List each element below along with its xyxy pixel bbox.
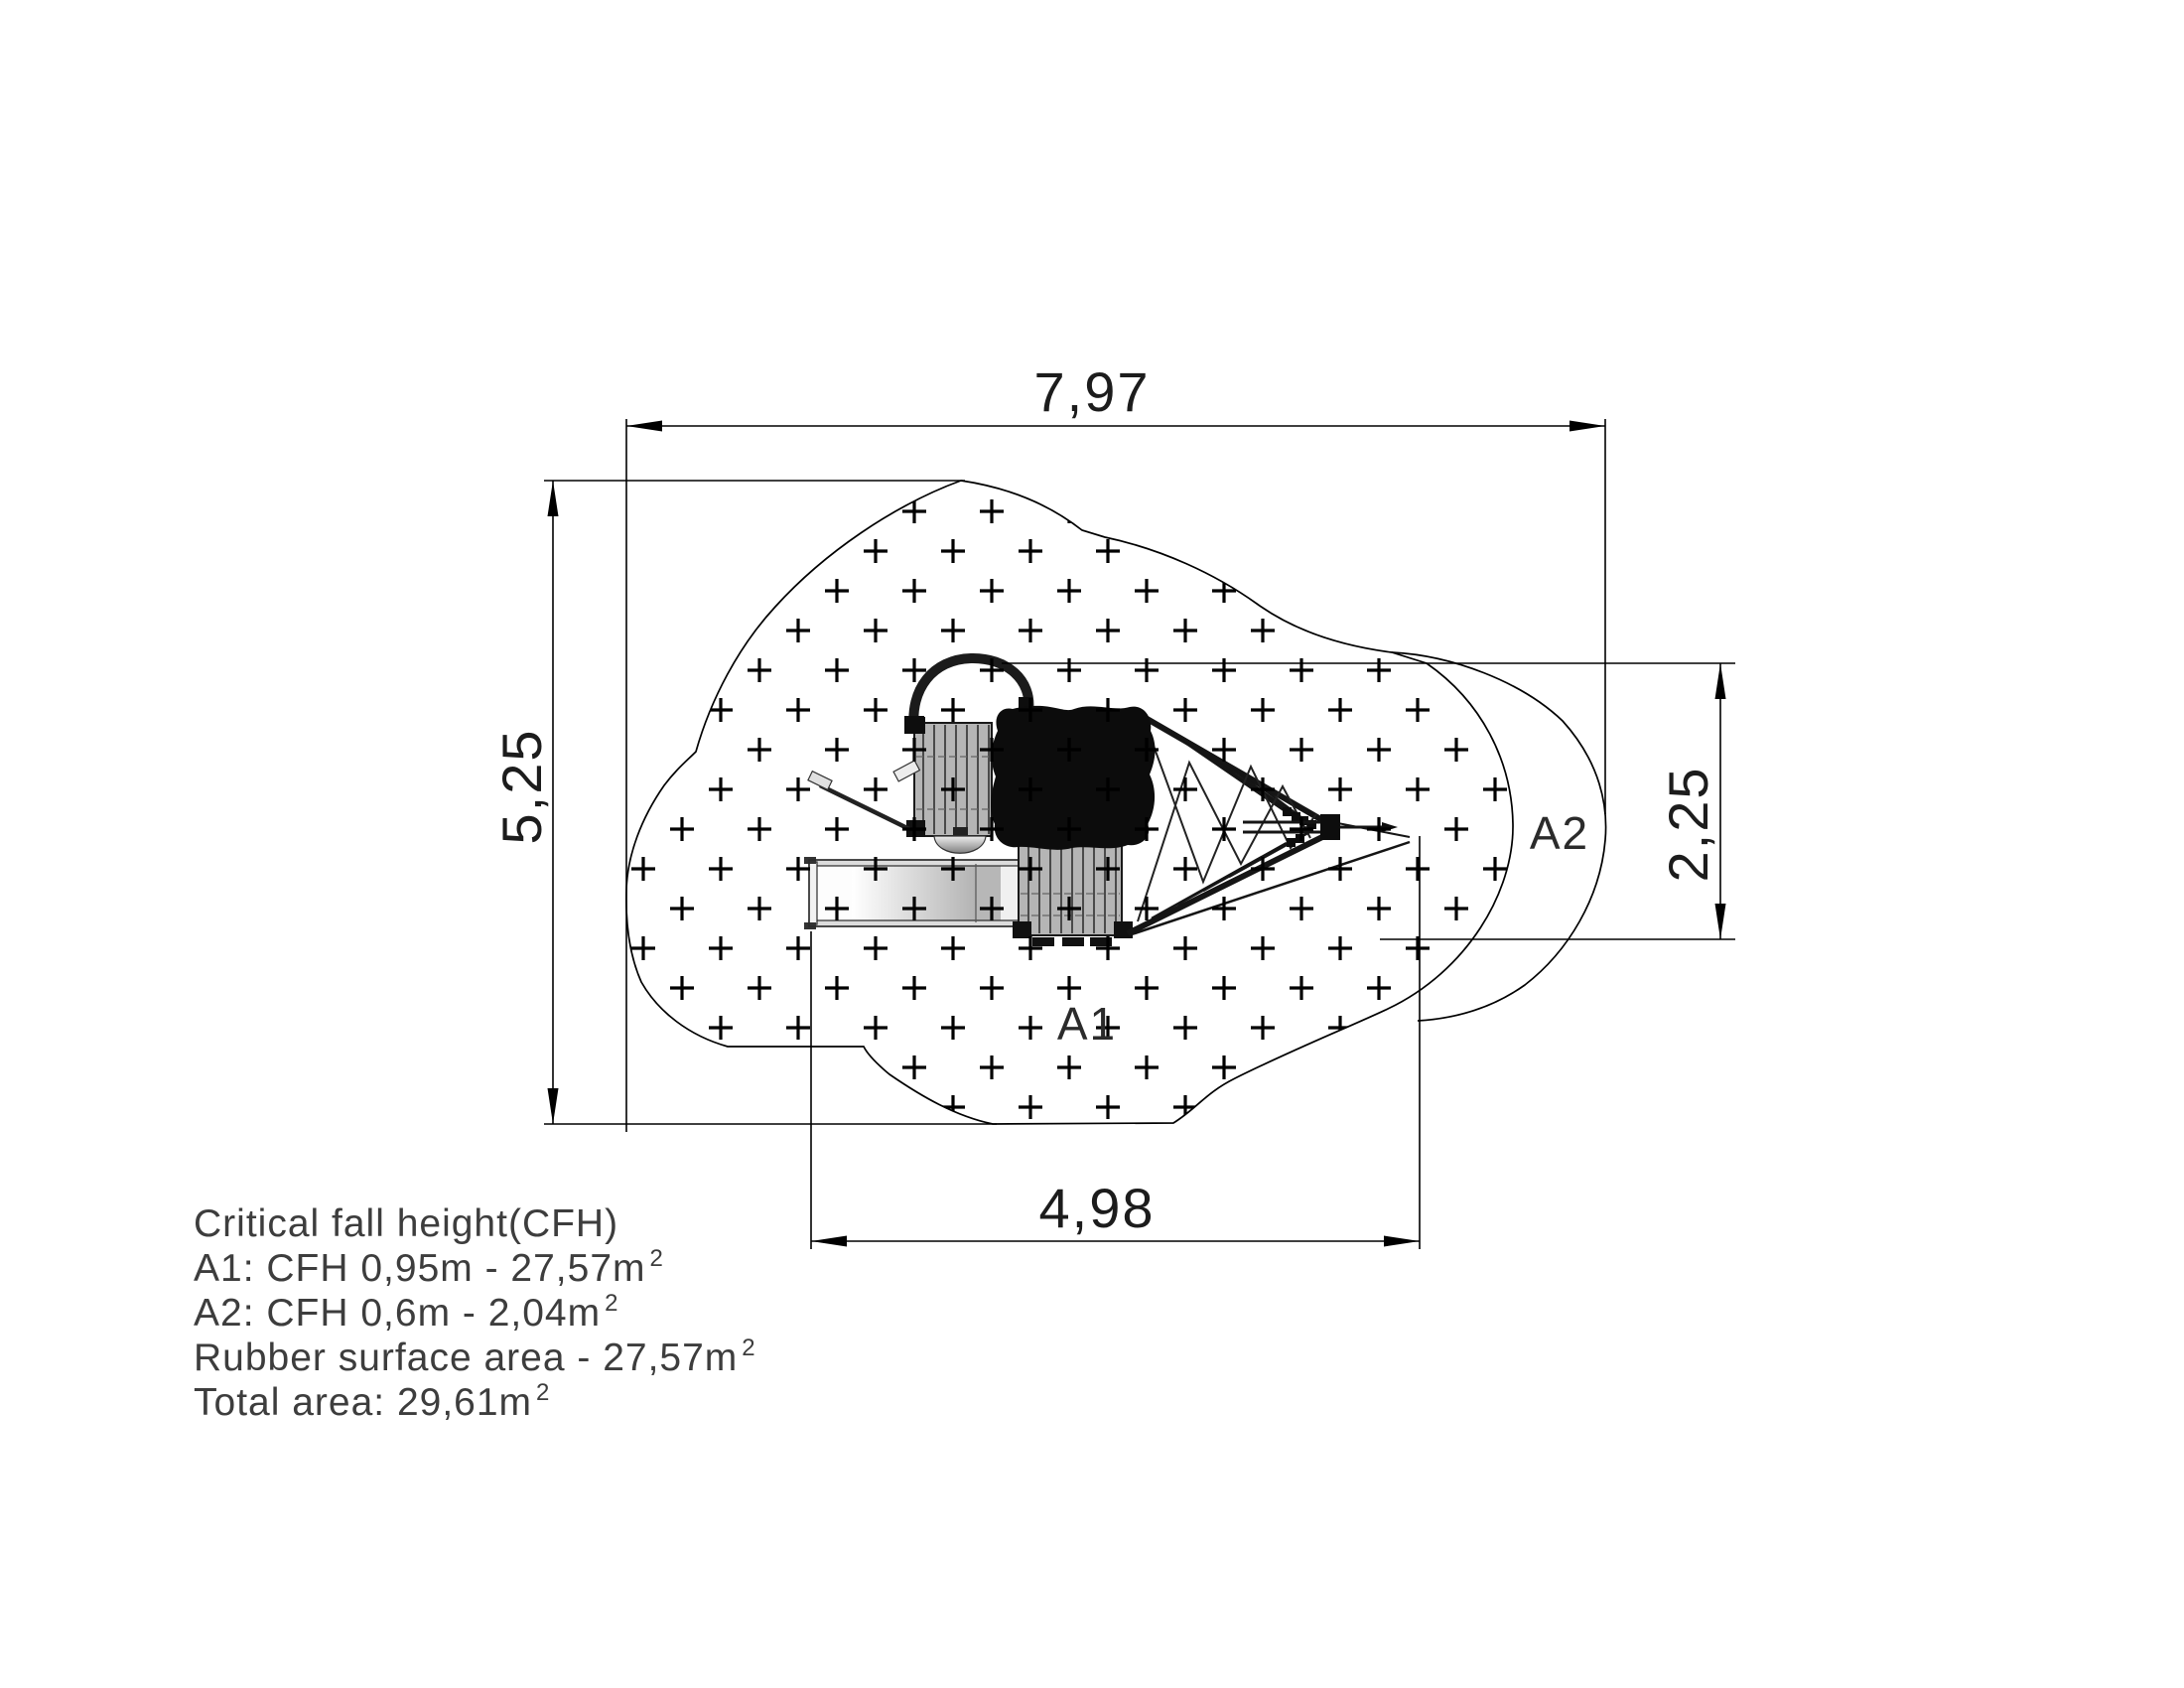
dim-label-bottom: 4,98 bbox=[1039, 1177, 1156, 1239]
slide-rail-bottom bbox=[809, 920, 1029, 926]
note-line-2: A1: CFH 0,95m - 27,57m2 bbox=[194, 1245, 664, 1290]
slide-rail-top bbox=[809, 860, 1029, 866]
upper-platform bbox=[906, 717, 992, 838]
area-label-a1: A1 bbox=[1057, 998, 1117, 1050]
slide-bed-end bbox=[976, 864, 1001, 922]
platform-foot-1 bbox=[1032, 937, 1054, 946]
note-line-1: Critical fall height(CFH) bbox=[194, 1202, 618, 1245]
dim-label-right: 2,25 bbox=[1657, 767, 1719, 883]
arch-bracket-left bbox=[904, 716, 924, 734]
drawing-page: 7,97 4,98 5,25 2,25 A1 A2 Critical fall … bbox=[0, 0, 2184, 1688]
area-label-a2: A2 bbox=[1530, 807, 1589, 859]
net-anchor-block bbox=[1320, 814, 1340, 840]
technical-drawing: 7,97 4,98 5,25 2,25 A1 A2 Critical fall … bbox=[0, 0, 2184, 1688]
platform-foot-2 bbox=[1062, 937, 1084, 946]
lower-platform-bracket-left bbox=[1013, 921, 1031, 938]
note-line-4: Rubber surface area - 27,57m2 bbox=[194, 1335, 756, 1379]
note-line-5: Total area: 29,61m2 bbox=[194, 1379, 550, 1424]
dim-label-top: 7,97 bbox=[1034, 360, 1151, 423]
dim-label-left: 5,25 bbox=[490, 729, 553, 845]
note-line-3: A2: CFH 0,6m - 2,04m2 bbox=[194, 1290, 618, 1335]
slide-left-end-cap bbox=[809, 862, 817, 924]
